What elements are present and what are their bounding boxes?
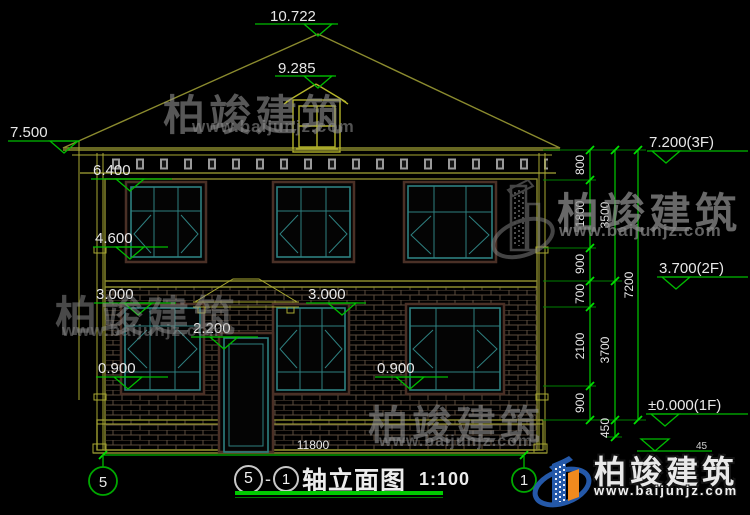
dim-label: 700	[573, 284, 587, 304]
dim-chain-mid-labels: 3500 3700 450	[598, 201, 612, 438]
dim-label: 7.500	[10, 124, 48, 141]
elevation-marker-ridge: 10.722	[255, 8, 338, 36]
drawing-scale: 1:100	[419, 469, 470, 490]
dim-label: 3.000	[308, 286, 346, 303]
dim-label: 7200	[622, 271, 636, 298]
dim-label: 900	[573, 254, 587, 274]
entrance-door	[219, 333, 273, 452]
title-axis-bubble-left: 5	[234, 465, 263, 494]
roof-dormer	[284, 84, 348, 152]
elevation-marker-7500: 7.500	[8, 124, 80, 153]
title-underline-thin	[235, 497, 443, 498]
downpipe-right	[536, 153, 548, 450]
dim-label: 3500	[598, 201, 612, 228]
dim-label: 9.285	[278, 60, 316, 77]
window-1f-center	[273, 304, 349, 394]
dim-label: 1800	[573, 200, 587, 227]
dim-label: 800	[573, 155, 587, 175]
dim-chain-inner-labels: 800 1800 900 700 2100 900	[573, 155, 587, 413]
grid-bubble-label: 5	[99, 474, 107, 491]
dim-label: 7.200(3F)	[649, 134, 714, 151]
dim-label: 450	[598, 418, 612, 438]
dim-label: 3.700(2F)	[659, 260, 724, 277]
dim-label: 4.600	[95, 230, 133, 247]
grid-bubble-5: 5	[89, 467, 117, 495]
window-2f-left	[126, 182, 206, 262]
cad-elevation-drawing: 10.722 9.285 7.500 6.400 4.600 3.000 2.2…	[0, 0, 750, 515]
dim-label: 0.900	[377, 360, 415, 377]
dim-label: 3700	[598, 336, 612, 363]
dim-label: 2100	[573, 332, 587, 359]
dim-label: 11800	[297, 438, 330, 452]
eave-cornice	[63, 150, 560, 179]
window-2f-right	[404, 182, 496, 262]
dim-chain-outer-label: 7200	[622, 271, 636, 298]
dim-label: 3.000	[96, 286, 134, 303]
window-2f-center	[273, 182, 354, 262]
elevation-marker-dormer: 9.285	[275, 60, 336, 88]
brand-logo-site: www.baijunjz.com	[594, 483, 738, 498]
title-axis-separator: -	[265, 469, 271, 490]
elevation-marker-2f: 3.700(2F)	[657, 260, 748, 289]
elevation-drawing-canvas: 10.722 9.285 7.500 6.400 4.600 3.000 2.2…	[0, 0, 750, 515]
dim-label: 2.200	[193, 320, 231, 337]
dim-label: 900	[573, 393, 587, 413]
hip-roof	[63, 34, 560, 148]
title-axis-bubble-right: 1	[273, 466, 299, 492]
dim-label: 10.722	[270, 8, 316, 25]
elevation-marker-3f: 7.200(3F)	[647, 134, 748, 163]
elevation-marker-1f: ±0.000(1F)	[646, 397, 748, 426]
grid-bubble-1: 1	[512, 468, 536, 492]
grid-bubble-label: 1	[520, 472, 528, 489]
title-underline	[235, 491, 443, 495]
window-1f-left	[121, 304, 204, 394]
dim-label: 6.400	[93, 162, 131, 179]
dim-label: ±0.000(1F)	[648, 397, 721, 414]
dim-label: 0.900	[98, 360, 136, 377]
